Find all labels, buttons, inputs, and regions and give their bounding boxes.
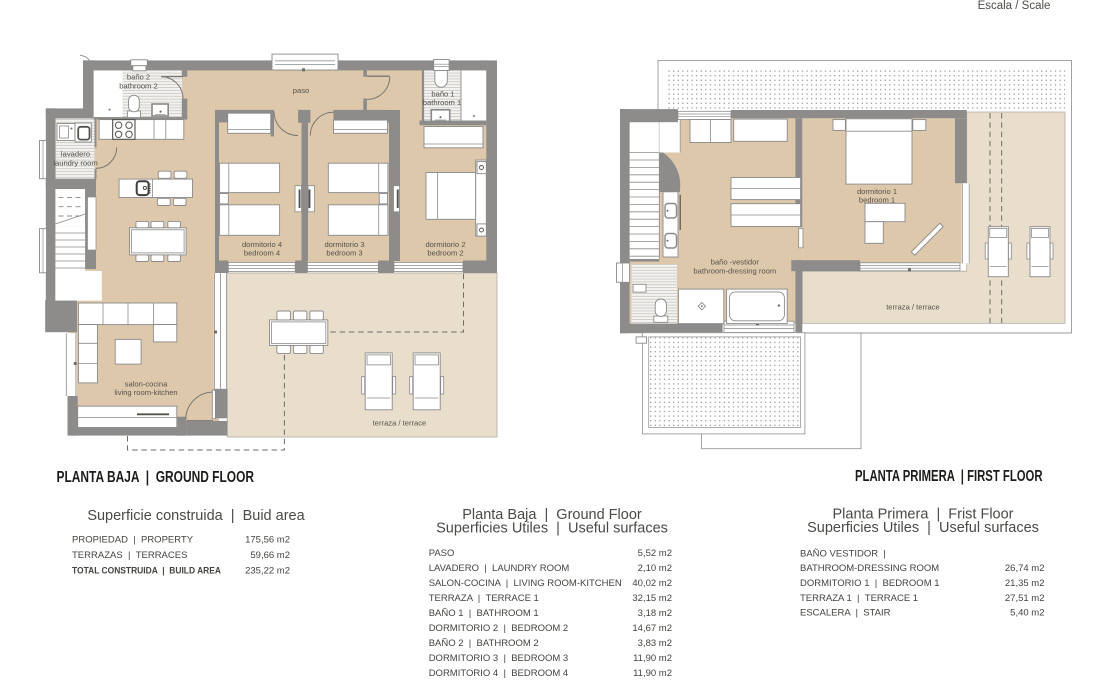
svg-text:paso: paso xyxy=(293,86,309,95)
svg-text:27,51 m2: 27,51 m2 xyxy=(1005,593,1045,604)
svg-text:BATHROOM-DRESSING ROOM: BATHROOM-DRESSING ROOM xyxy=(800,563,939,574)
svg-text:32,15 m2: 32,15 m2 xyxy=(632,593,672,604)
svg-text:TERRAZA 1 | TERRACE 1: TERRAZA 1 | TERRACE 1 xyxy=(800,593,918,604)
svg-text:bedroom 2: bedroom 2 xyxy=(427,249,463,258)
svg-text:BAÑO VESTIDOR |: BAÑO VESTIDOR | xyxy=(800,549,886,560)
svg-text:3,83 m2: 3,83 m2 xyxy=(638,638,672,649)
svg-text:2,10 m2: 2,10 m2 xyxy=(638,563,672,574)
svg-text:bathroom 1: bathroom 1 xyxy=(423,98,461,107)
svg-text:bathroom-dressing room: bathroom-dressing room xyxy=(693,267,776,276)
svg-text:40,02 m2: 40,02 m2 xyxy=(632,578,672,589)
svg-text:bedroom 1: bedroom 1 xyxy=(859,196,895,205)
svg-text:11,90 m2: 11,90 m2 xyxy=(633,668,672,679)
svg-text:bedroom 4: bedroom 4 xyxy=(244,249,280,258)
svg-text:bathroom 2: bathroom 2 xyxy=(119,82,157,91)
svg-text:235,22 m2: 235,22 m2 xyxy=(245,566,290,577)
svg-text:Superficie construida | Buid: Superficie construida | Buid area xyxy=(87,508,305,524)
svg-text:3,18 m2: 3,18 m2 xyxy=(638,608,672,619)
svg-text:bedroom 3: bedroom 3 xyxy=(326,249,362,258)
svg-text:TERRAZAS | TERRACES: TERRAZAS | TERRACES xyxy=(72,550,187,561)
svg-text:PLANTA BAJA | GROUND FLOOR: PLANTA BAJA | GROUND FLOOR xyxy=(57,469,255,486)
svg-text:175,56 m2: 175,56 m2 xyxy=(245,535,290,546)
svg-text:lavadero: lavadero xyxy=(61,150,90,159)
svg-text:living room-kitchen: living room-kitchen xyxy=(114,388,177,397)
svg-text:5,52 m2: 5,52 m2 xyxy=(638,548,672,559)
svg-text:26,74 m2: 26,74 m2 xyxy=(1005,563,1045,574)
svg-text:DORMITORIO 2 | BEDROOM 2: DORMITORIO 2 | BEDROOM 2 xyxy=(429,623,569,634)
svg-text:Superficies Utiles | Useful: Superficies Utiles | Useful surfaces xyxy=(807,520,1039,536)
svg-text:PLANTA PRIMERA | FIRST FLOOR: PLANTA PRIMERA | FIRST FLOOR xyxy=(855,468,1043,485)
svg-text:BAÑO 1 | BATHROOM 1: BAÑO 1 | BATHROOM 1 xyxy=(429,608,539,619)
svg-text:14,67 m2: 14,67 m2 xyxy=(632,623,672,634)
svg-text:Escala / Scale: Escala / Scale xyxy=(978,0,1051,12)
svg-text:DORMITORIO 4 | BEDROOM 4: DORMITORIO 4 | BEDROOM 4 xyxy=(429,668,569,679)
svg-text:terraza / terrace: terraza / terrace xyxy=(886,303,940,312)
svg-text:terraza / terrace: terraza / terrace xyxy=(373,419,427,428)
svg-text:BAÑO 2 | BATHROOM 2: BAÑO 2 | BATHROOM 2 xyxy=(429,638,539,649)
svg-text:DORMITORIO 1 | BEDROOM 1: DORMITORIO 1 | BEDROOM 1 xyxy=(800,578,940,589)
svg-text:ESCALERA | STAIR: ESCALERA | STAIR xyxy=(800,608,891,619)
svg-text:5,40 m2: 5,40 m2 xyxy=(1010,608,1044,619)
svg-text:59,66 m2: 59,66 m2 xyxy=(250,550,290,561)
svg-text:Superficies Utiles | Useful: Superficies Utiles | Useful surfaces xyxy=(436,521,668,537)
svg-text:baño -vestidor: baño -vestidor xyxy=(711,258,760,267)
svg-text:DORMITORIO 3 | BEDROOM 3: DORMITORIO 3 | BEDROOM 3 xyxy=(429,653,569,664)
svg-text:baño 2: baño 2 xyxy=(127,73,150,82)
svg-text:PASO: PASO xyxy=(429,548,455,559)
svg-text:TERRAZA | TERRACE 1: TERRAZA | TERRACE 1 xyxy=(429,593,539,604)
svg-text:11,90 m2: 11,90 m2 xyxy=(633,653,672,664)
svg-text:21,35 m2: 21,35 m2 xyxy=(1005,578,1045,589)
svg-text:SALON-COCINA | LIVING ROOM-K: SALON-COCINA | LIVING ROOM-KITCHEN xyxy=(429,578,622,589)
svg-text:LAVADERO | LAUNDRY ROOM: LAVADERO | LAUNDRY ROOM xyxy=(429,563,570,574)
svg-text:PROPIEDAD | PROPERTY: PROPIEDAD | PROPERTY xyxy=(72,535,194,546)
svg-text:laundry room: laundry room xyxy=(53,159,97,168)
svg-text:TOTAL CONSTRUIDA | BUILD ARE: TOTAL CONSTRUIDA | BUILD AREA xyxy=(72,566,221,577)
